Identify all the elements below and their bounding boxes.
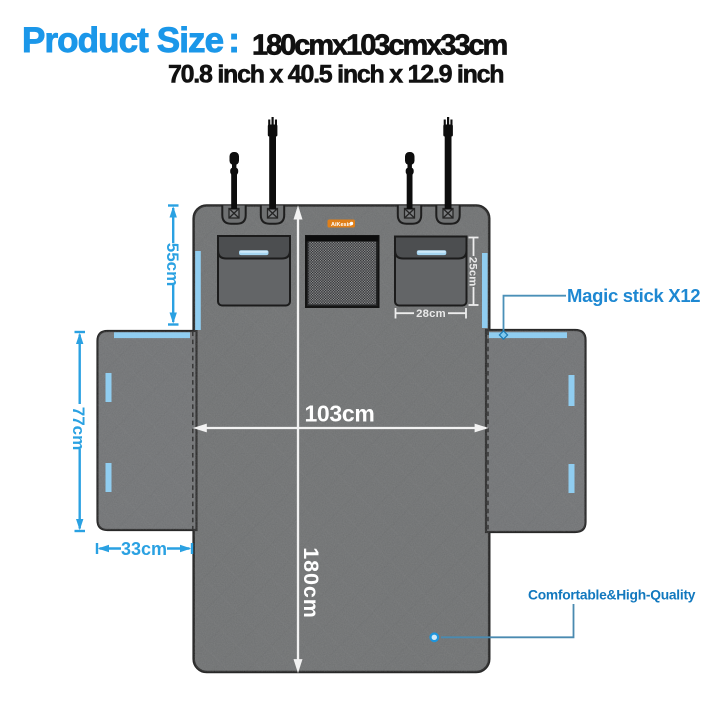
svg-text:77cm: 77cm — [69, 407, 88, 450]
svg-text:70.8 inch x 40.5 inch x 12.9 i: 70.8 inch x 40.5 inch x 12.9 inch — [168, 61, 503, 89]
svg-text:33cm: 33cm — [121, 539, 167, 559]
svg-text:103cm: 103cm — [304, 400, 374, 426]
svg-text:180cmx103cmx33cm: 180cmx103cmx33cm — [252, 30, 506, 62]
svg-text:55cm: 55cm — [163, 243, 182, 286]
svg-text:Product Size:: Product Size: — [22, 21, 239, 60]
svg-text:25cm: 25cm — [466, 257, 478, 287]
svg-text:180cm: 180cm — [299, 547, 323, 618]
svg-text:Comfortable&High-Quality: Comfortable&High-Quality — [528, 588, 696, 603]
svg-text:28cm: 28cm — [416, 308, 446, 320]
svg-text:AiKesin: AiKesin — [331, 222, 352, 228]
svg-text:Magic stick X12: Magic stick X12 — [567, 285, 700, 306]
